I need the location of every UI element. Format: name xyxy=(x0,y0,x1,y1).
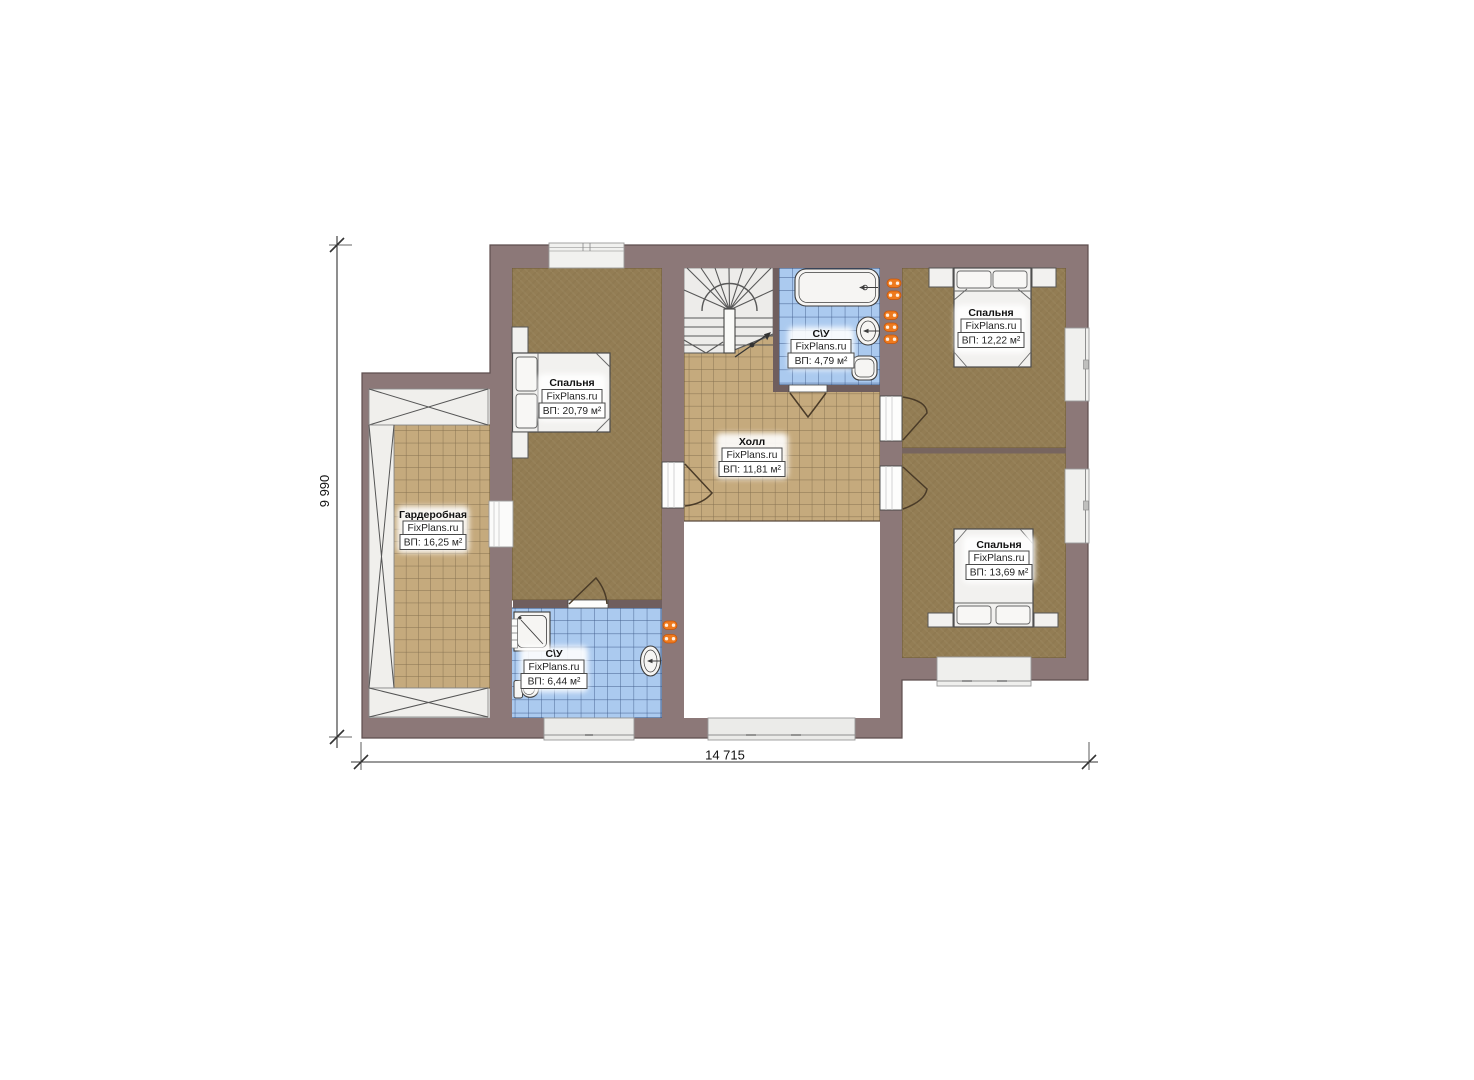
svg-text:FixPlans.ru: FixPlans.ru xyxy=(727,450,778,461)
svg-text:FixPlans.ru: FixPlans.ru xyxy=(966,321,1017,332)
svg-text:14 715: 14 715 xyxy=(705,748,745,763)
svg-text:С\У: С\У xyxy=(545,648,563,660)
svg-text:С\У: С\У xyxy=(812,328,830,340)
svg-text:Гардеробная: Гардеробная xyxy=(399,509,467,521)
svg-text:ВП: 12,22 м²: ВП: 12,22 м² xyxy=(962,336,1021,347)
svg-text:FixPlans.ru: FixPlans.ru xyxy=(547,392,598,403)
svg-text:FixPlans.ru: FixPlans.ru xyxy=(974,553,1025,564)
svg-text:Спальня: Спальня xyxy=(976,539,1021,551)
svg-text:ВП: 13,69 м²: ВП: 13,69 м² xyxy=(970,568,1029,579)
svg-text:Спальня: Спальня xyxy=(968,307,1013,319)
svg-text:ВП: 6,44 м²: ВП: 6,44 м² xyxy=(528,677,581,688)
svg-text:ВП: 16,25 м²: ВП: 16,25 м² xyxy=(404,538,463,549)
svg-text:Холл: Холл xyxy=(739,436,765,448)
svg-text:ВП: 4,79 м²: ВП: 4,79 м² xyxy=(795,356,848,367)
svg-text:ВП: 20,79 м²: ВП: 20,79 м² xyxy=(543,406,602,417)
svg-text:ВП: 11,81 м²: ВП: 11,81 м² xyxy=(723,465,781,476)
svg-text:Спальня: Спальня xyxy=(549,377,594,389)
svg-text:FixPlans.ru: FixPlans.ru xyxy=(408,523,459,534)
svg-text:FixPlans.ru: FixPlans.ru xyxy=(529,662,580,673)
svg-text:FixPlans.ru: FixPlans.ru xyxy=(796,342,847,353)
svg-text:9 990: 9 990 xyxy=(317,475,332,508)
